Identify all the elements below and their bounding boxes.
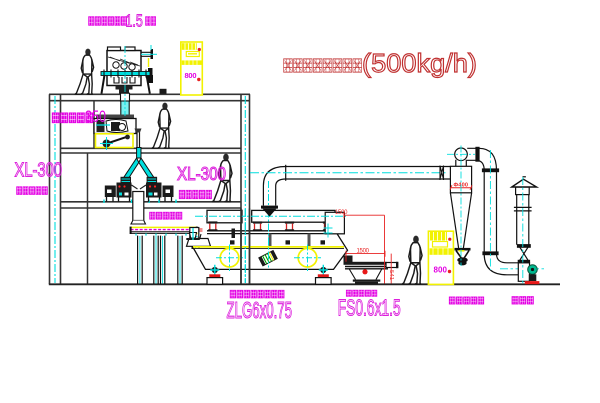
svg-text:1500: 1500: [357, 249, 370, 255]
svg-text:541: 541: [388, 270, 394, 280]
svg-text:1500: 1500: [335, 210, 348, 216]
svg-text:800: 800: [185, 71, 197, 80]
svg-text:ZLG6x0.75: ZLG6x0.75: [227, 297, 293, 323]
svg-text:(500kg/h): (500kg/h): [362, 48, 477, 78]
svg-text:FS0.6x1.5: FS0.6x1.5: [338, 295, 401, 321]
svg-text:1.5: 1.5: [126, 10, 143, 30]
svg-text:800: 800: [434, 266, 448, 275]
svg-text:350: 350: [85, 108, 106, 126]
svg-text:XL-300: XL-300: [15, 159, 63, 181]
svg-text:XL-300: XL-300: [177, 164, 226, 184]
